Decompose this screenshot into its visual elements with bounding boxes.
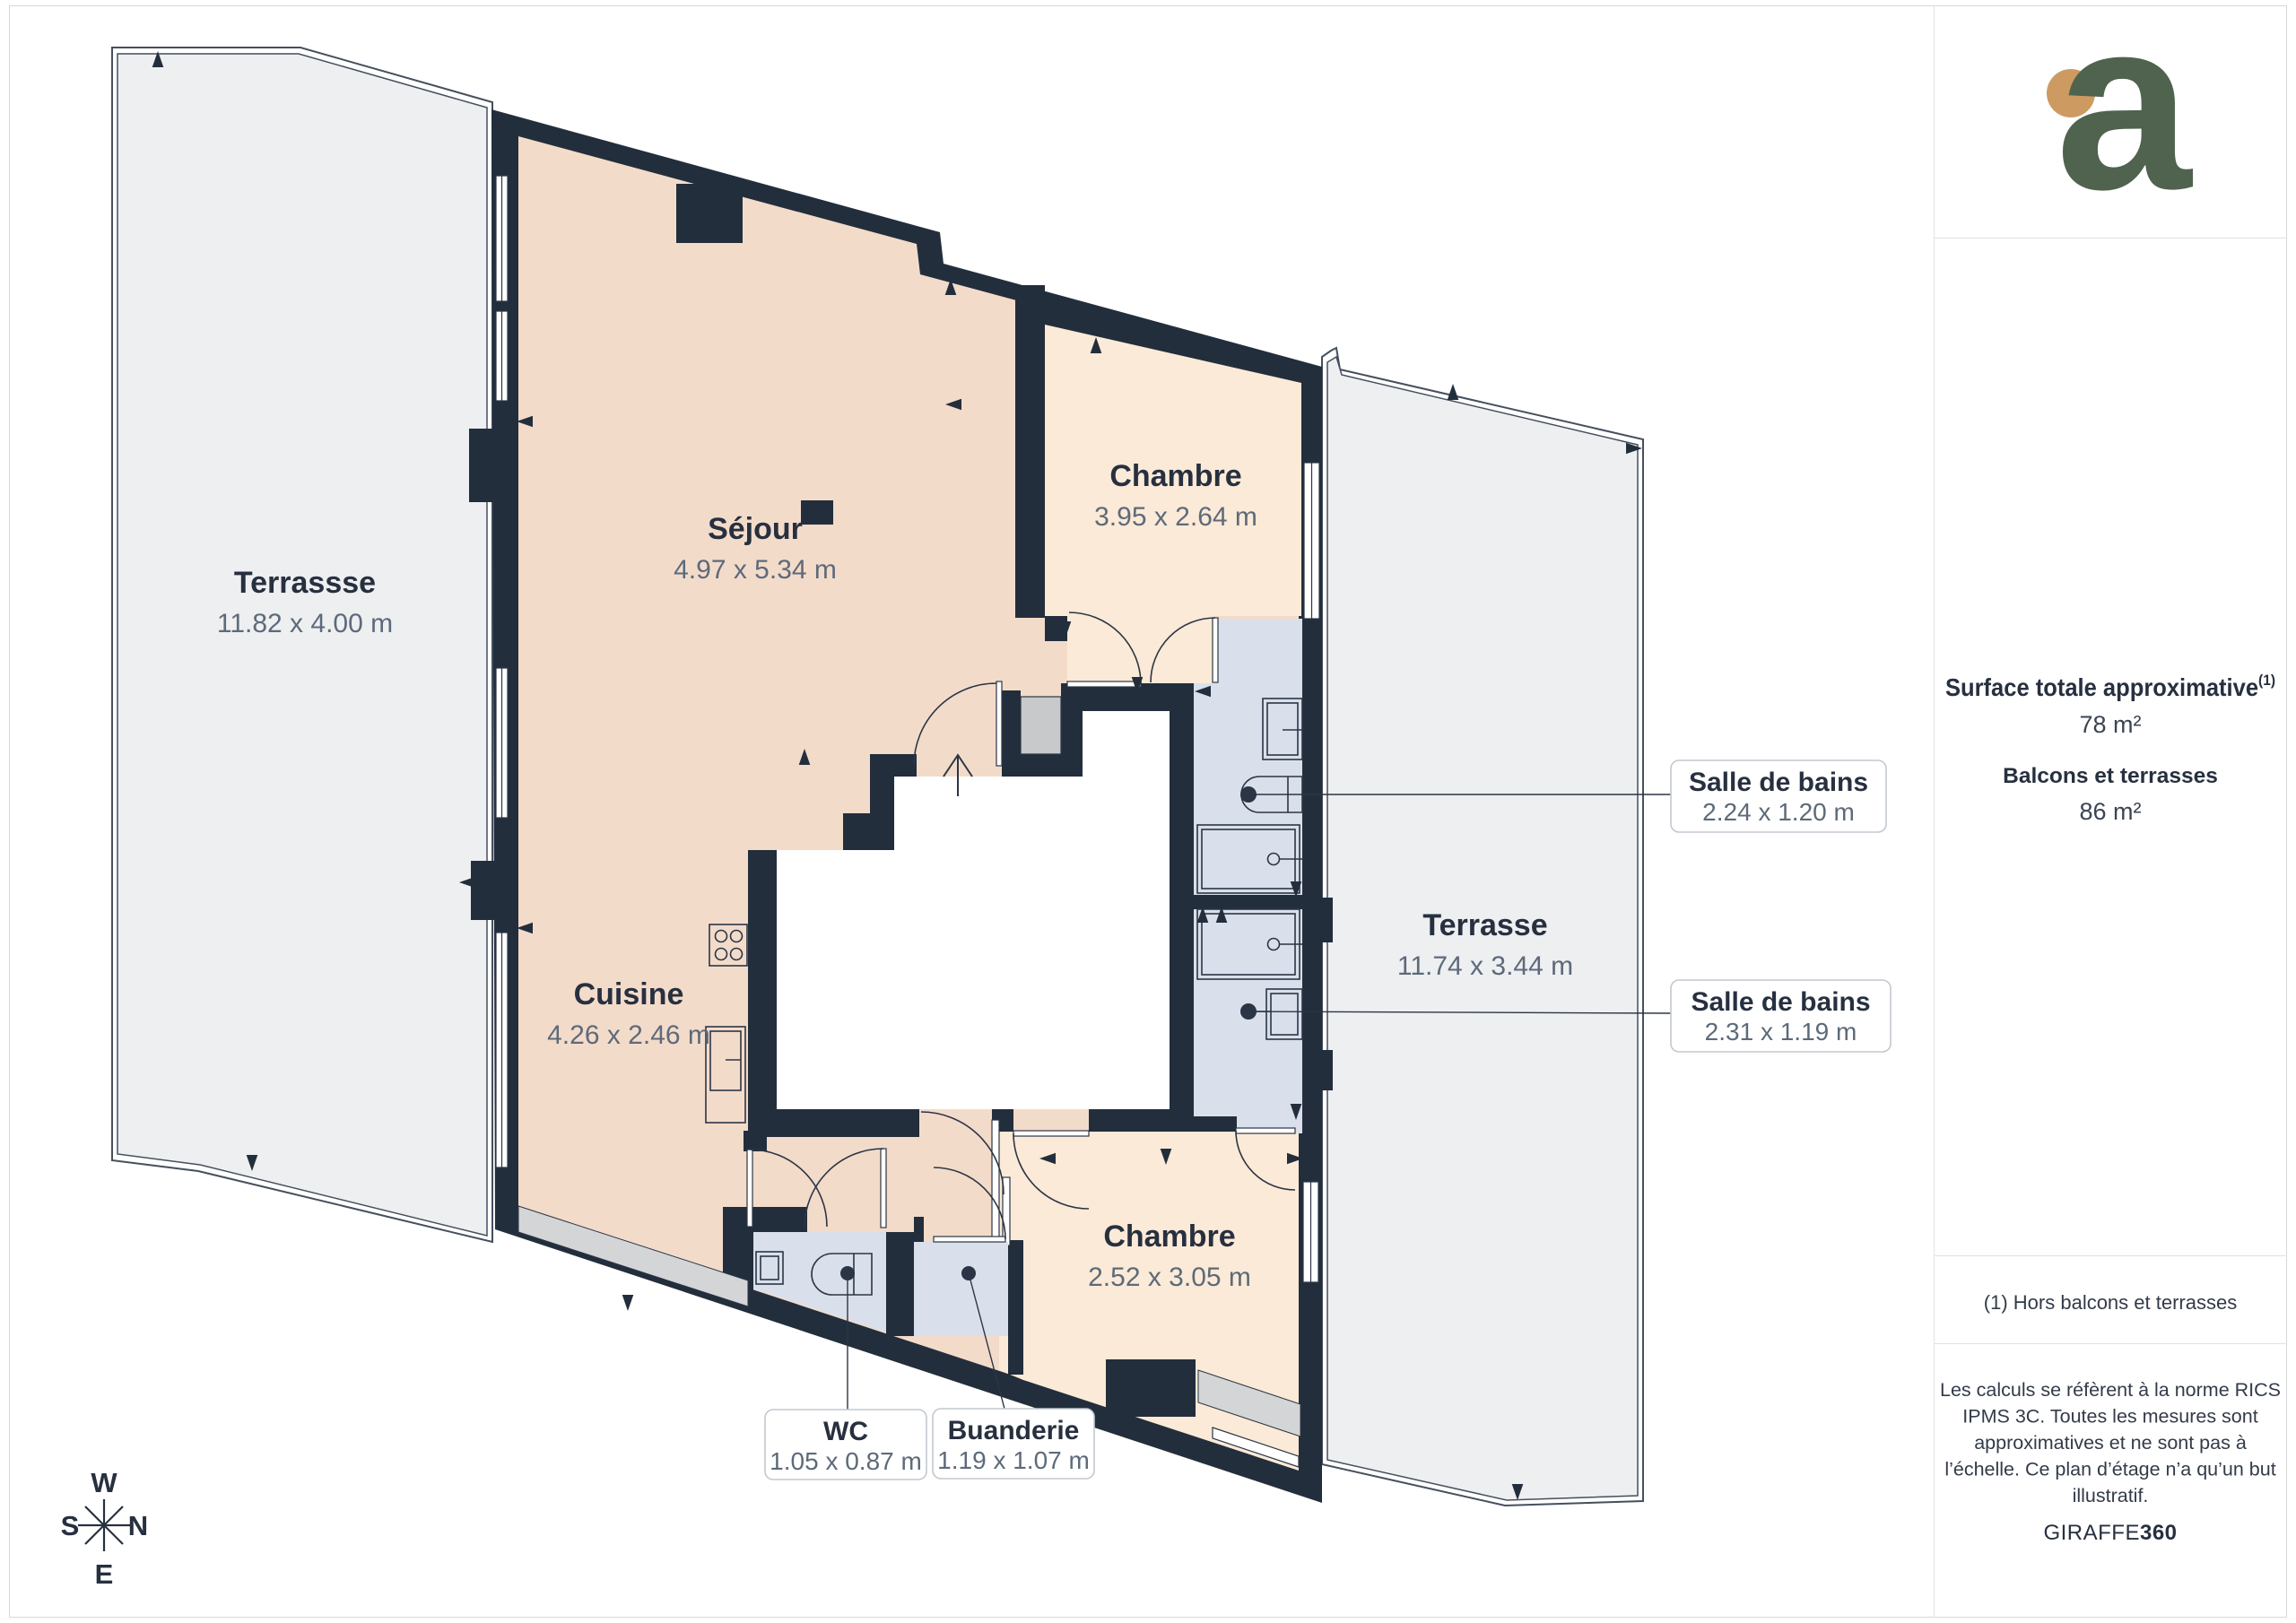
svg-text:Surface totale approximative(1: Surface totale approximative(1) [1945,672,2275,701]
svg-text:2.24 x 1.20 m: 2.24 x 1.20 m [1702,798,1855,826]
svg-text:l’échelle. Ce plan d’étage n’a: l’échelle. Ce plan d’étage n’a qu’un but [1944,1459,2275,1480]
svg-text:86 m²: 86 m² [2079,798,2141,825]
svg-text:E: E [95,1558,114,1590]
svg-text:(1) Hors balcons et terrasses: (1) Hors balcons et terrasses [1984,1291,2237,1314]
svg-text:IPMS 3C. Toutes les mesures so: IPMS 3C. Toutes les mesures sont [1962,1406,2257,1428]
svg-text:11.74 x 3.44 m: 11.74 x 3.44 m [1397,951,1573,981]
svg-text:4.97 x 5.34 m: 4.97 x 5.34 m [674,555,837,585]
svg-text:1.05 x 0.87 m: 1.05 x 0.87 m [770,1447,922,1475]
svg-text:Terrassse: Terrassse [234,566,376,600]
svg-text:W: W [91,1467,117,1498]
svg-text:4.26 x 2.46 m: 4.26 x 2.46 m [547,1020,710,1050]
svg-text:2.31 x 1.19 m: 2.31 x 1.19 m [1705,1018,1857,1046]
svg-text:GIRAFFE360: GIRAFFE360 [2043,1521,2177,1545]
svg-text:Salle de bains: Salle de bains [1691,987,1870,1017]
svg-text:2.52 x 3.05 m: 2.52 x 3.05 m [1088,1263,1251,1292]
svg-text:N: N [128,1510,148,1541]
svg-text:WC: WC [823,1417,868,1446]
svg-text:3.95 x 2.64 m: 3.95 x 2.64 m [1094,502,1257,532]
svg-text:Les calculs se réfèrent à la n: Les calculs se réfèrent à la norme RICS [1940,1379,2281,1401]
svg-text:78 m²: 78 m² [2079,711,2141,738]
svg-text:Buanderie: Buanderie [948,1416,1080,1445]
svg-text:illustratif.: illustratif. [2073,1485,2149,1506]
svg-text:1.19 x 1.07 m: 1.19 x 1.07 m [937,1446,1090,1474]
svg-text:Cuisine: Cuisine [574,977,684,1011]
svg-text:a: a [2056,0,2193,240]
svg-text:Chambre: Chambre [1103,1219,1235,1254]
svg-text:Salle de bains: Salle de bains [1689,768,1868,797]
svg-text:approximatives et ne sont pas: approximatives et ne sont pas à [1974,1432,2247,1454]
svg-text:Terrasse: Terrasse [1422,908,1547,942]
svg-text:Balcons et terrasses: Balcons et terrasses [2003,764,2218,788]
svg-text:S: S [61,1510,80,1541]
svg-text:Séjour: Séjour [708,512,803,546]
svg-text:Chambre: Chambre [1109,459,1241,493]
svg-text:11.82 x 4.00 m: 11.82 x 4.00 m [217,609,393,638]
